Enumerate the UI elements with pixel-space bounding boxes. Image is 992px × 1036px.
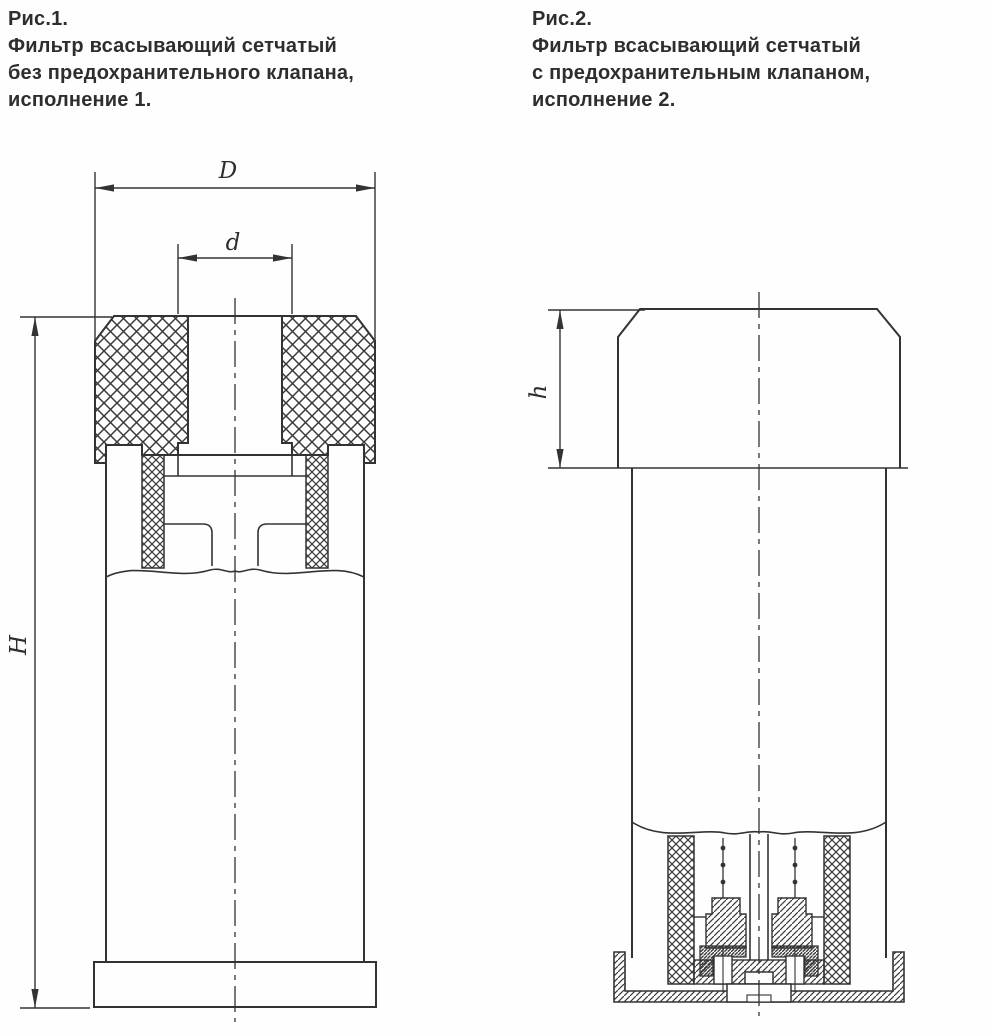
dimension-label-h: h: [526, 385, 552, 400]
figure2-mesh-column-right: [824, 836, 850, 984]
arrow-down-icon: [31, 989, 38, 1008]
dimension-label-d: d: [226, 230, 241, 256]
figure2-drawing: h: [526, 292, 908, 1016]
figure2-mesh-column-left: [668, 836, 694, 984]
technical-drawing-page: Рис.1. Фильтр всасывающий сетчатый без п…: [0, 0, 992, 1036]
arrow-right-icon: [356, 184, 375, 191]
figure2-dimension-h: h: [526, 310, 908, 468]
dimension-label-H: H: [6, 634, 32, 656]
arrow-up-icon: [31, 317, 38, 336]
figure1-mesh-column-right: [306, 455, 328, 568]
arrow-up-icon: [556, 310, 563, 329]
arrow-left-icon: [178, 254, 197, 261]
arrow-down-icon: [556, 449, 563, 468]
figure1-mesh-column-left: [142, 455, 164, 568]
arrow-left-icon: [95, 184, 114, 191]
arrow-right-icon: [273, 254, 292, 261]
figure1-drawing: D d H: [6, 158, 376, 1022]
technical-drawing-canvas: D d H: [0, 0, 992, 1036]
dimension-label-D: D: [218, 158, 237, 184]
